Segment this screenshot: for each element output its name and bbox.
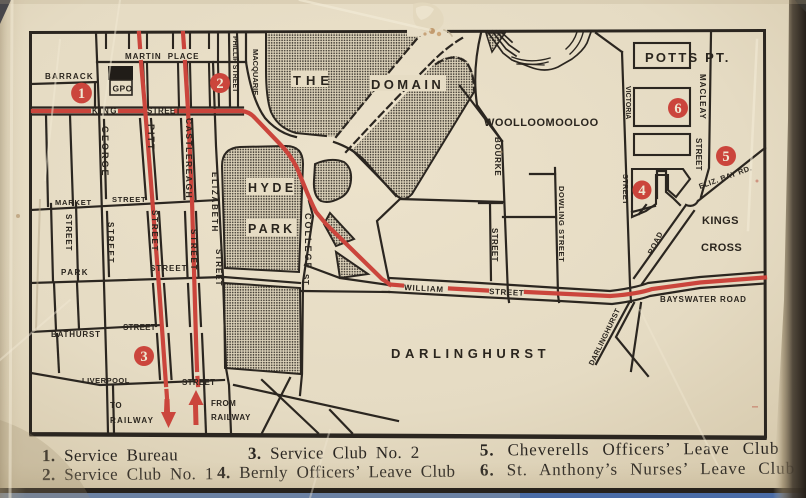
svg-text:PARK: PARK (248, 222, 295, 236)
svg-text:MACQUARIE: MACQUARIE (251, 49, 260, 95)
svg-text:COLLEGE: COLLEGE (303, 213, 313, 271)
svg-text:5. Cheverells Officers’ Leave: 5. Cheverells Officers’ Leave Club (480, 439, 780, 460)
svg-text:BARRACK: BARRACK (45, 72, 94, 81)
svg-text:STREET: STREET (621, 174, 630, 205)
svg-text:STREET: STREET (112, 195, 146, 204)
svg-text:STREET: STREET (64, 214, 73, 252)
svg-text:FROM: FROM (211, 399, 236, 408)
svg-text:ST: ST (301, 274, 310, 285)
svg-text:CASTLEREAGH: CASTLEREAGH (184, 118, 194, 199)
svg-text:STREET: STREET (490, 228, 499, 262)
svg-text:GPO: GPO (113, 84, 133, 94)
svg-text:ELIZABETH: ELIZABETH (210, 172, 219, 233)
svg-text:RAILWAY: RAILWAY (110, 416, 154, 425)
svg-text:PHILLIP STREET: PHILLIP STREET (231, 36, 238, 93)
svg-text:DOMAIN: DOMAIN (371, 77, 444, 92)
svg-text:STREET: STREET (123, 323, 156, 332)
svg-text:MACLEAY: MACLEAY (698, 74, 707, 120)
svg-text:STREET: STREET (150, 210, 159, 252)
svg-text:STREET: STREET (182, 378, 215, 387)
svg-text:STREET: STREET (106, 222, 115, 264)
svg-text:BAYSWATER ROAD: BAYSWATER ROAD (660, 295, 747, 304)
svg-text:GEORGE: GEORGE (100, 126, 110, 178)
svg-text:PITT: PITT (146, 124, 156, 152)
svg-text:DOWLING STREET: DOWLING STREET (557, 186, 566, 262)
svg-text:BOURKE: BOURKE (493, 137, 502, 176)
svg-text:STREET: STREET (150, 264, 188, 273)
svg-text:VICTORIA: VICTORIA (624, 86, 631, 119)
svg-text:CROSS: CROSS (701, 242, 742, 254)
svg-text:2: 2 (216, 76, 223, 92)
svg-text:THE: THE (293, 73, 334, 88)
svg-text:1: 1 (78, 86, 85, 102)
svg-text:STREET: STREET (694, 138, 703, 171)
svg-text:RAILWAY: RAILWAY (211, 413, 251, 422)
svg-text:PARK: PARK (61, 268, 89, 277)
svg-text:TO: TO (110, 401, 122, 410)
svg-text:STREET: STREET (489, 287, 525, 298)
svg-text:POTTS PT.: POTTS PT. (645, 50, 731, 65)
svg-text:DARLINGHURST: DARLINGHURST (391, 346, 550, 361)
svg-text:KINGS: KINGS (702, 215, 739, 227)
svg-text:MARKET: MARKET (55, 198, 92, 207)
svg-text:WOOLLOOMOOLOO: WOOLLOOMOOLOO (484, 117, 599, 129)
svg-text:MARTIN PLACE: MARTIN PLACE (125, 52, 199, 61)
svg-text:5: 5 (722, 149, 729, 165)
svg-text:3. Service Club No. 2: 3. Service Club No. 2 (248, 443, 420, 463)
svg-text:3: 3 (140, 349, 147, 365)
svg-text:4: 4 (638, 183, 645, 199)
svg-text:STREET: STREET (214, 249, 223, 287)
svg-text:6: 6 (674, 101, 681, 117)
svg-text:STREET: STREET (147, 107, 181, 116)
svg-text:STREET: STREET (189, 229, 198, 271)
svg-text:LIVERPOOL: LIVERPOOL (82, 376, 130, 385)
svg-text:HYDE: HYDE (248, 181, 297, 195)
svg-text:BATHURST: BATHURST (51, 330, 101, 339)
